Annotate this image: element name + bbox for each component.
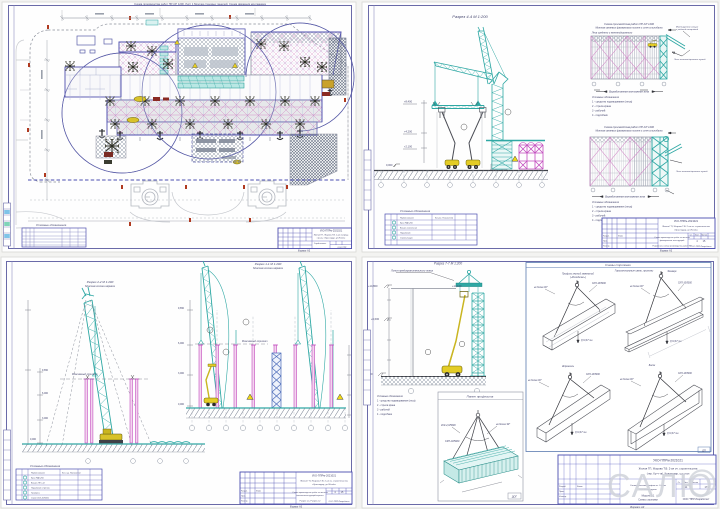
svg-text:не более 90°: не более 90° (620, 379, 634, 381)
svg-text:с рабочей площадкой: с рабочей площадкой (676, 28, 699, 31)
svg-text:СКП-10/5000: СКП-10/5000 (586, 374, 600, 376)
svg-text:г.Краснодар, ул.Жлобы: г.Краснодар, ул.Жлобы (674, 230, 698, 232)
svg-text:Схема производства работ ПР-СР: Схема производства работ ПР-СР 1200 (604, 22, 654, 26)
svg-text:Кран РДК-250: Кран РДК-250 (31, 478, 45, 480)
svg-text:Подъёмник стрелов.: Подъёмник стрелов. (31, 488, 50, 490)
svg-text:Леса железнодорожных путей: Леса железнодорожных путей (673, 58, 706, 61)
svg-text:Условные обозначения: Условные обозначения (592, 96, 620, 99)
svg-text:Кран РДК-250: Кран РДК-250 (400, 223, 414, 225)
svg-text:Н.контр.: Н.контр. (559, 496, 567, 498)
svg-text:Фокин: Фокин (618, 235, 623, 238)
svg-text:Шпренгель: Шпренгель (562, 366, 575, 368)
svg-text:Q=0,67 тн: Q=0,67 тн (581, 340, 593, 342)
svg-text:СКП-10/5000: СКП-10/5000 (678, 373, 692, 375)
svg-text:6,000: 6,000 (178, 342, 185, 345)
svg-text:+8,400: +8,400 (404, 100, 413, 104)
svg-text:1 - средство подмащивания (лес: 1 - средство подмащивания (леса) (592, 206, 632, 209)
svg-text:1 - средство подмащивания (лес: 1 - средство подмащивания (леса) (377, 400, 416, 403)
svg-text:Q=0,67 тн: Q=0,67 тн (667, 433, 679, 435)
svg-text:САЛЮ: САЛЮ (607, 467, 714, 504)
svg-text:9,650: 9,650 (178, 307, 185, 310)
svg-text:УКО-ППРм-2021021: УКО-ППРм-2021021 (674, 219, 699, 223)
svg-text:Пров.: Пров. (559, 491, 565, 493)
svg-text:Леса среднего и железнодорожно: Леса среднего и железнодорожного (591, 32, 633, 35)
svg-text:Листов: Листов (701, 235, 707, 237)
svg-text:Монтаж связевых фахверковых ко: Монтаж связевых фахверковых колонн и сте… (596, 27, 664, 30)
svg-text:не более 90°: не более 90° (534, 287, 548, 289)
svg-text:Горизонтальные связи, прогоны: Горизонтальные связи, прогоны (615, 270, 654, 273)
svg-text:6,000: 6,000 (42, 392, 49, 395)
svg-text:1 - средство подмащивания (лес: 1 - средство подмащивания (леса) (592, 101, 632, 104)
svg-text:+14,800: +14,800 (368, 284, 378, 288)
svg-text:Монтаж колонн каркаса: Монтаж колонн каркаса (85, 284, 115, 288)
svg-text:Разрез 1-1 М 1:200: Разрез 1-1 М 1:200 (255, 262, 282, 266)
svg-text:г.Краснодар, ул.Жлобы: г.Краснодар, ул.Жлобы (312, 484, 336, 486)
svg-text:+4,200: +4,200 (404, 130, 413, 134)
svg-text:4 - подсобник: 4 - подсобник (592, 114, 609, 117)
svg-text:4СК-2,0/5000: 4СК-2,0/5000 (441, 424, 456, 427)
svg-text:Монтажный горизонт: Монтажный горизонт (72, 373, 98, 376)
svg-text:Разрез 4-4 М 1:200: Разрез 4-4 М 1:200 (452, 14, 488, 19)
svg-text:Выработанная монтажная зона: Выработанная монтажная зона (605, 195, 645, 199)
svg-text:не более 90°: не более 90° (630, 286, 644, 288)
svg-text:2 - стрела крана: 2 - стрела крана (377, 404, 396, 407)
svg-text:Вышка ножничная: Вышка ножничная (400, 228, 417, 230)
svg-text:СКП-10/5000: СКП-10/5000 (592, 283, 606, 285)
svg-text:Монтируемая секция: Монтируемая секция (676, 27, 699, 29)
svg-text:Леса железнодорожных путей: Леса железнодорожных путей (675, 170, 708, 173)
svg-text:ДОГ: ДОГ (512, 495, 518, 499)
svg-text:3 - рабочий: 3 - рабочий (592, 110, 606, 113)
svg-text:Схема производства работ на мо: Схема производства работ на монтаж (654, 237, 690, 239)
svg-text:2 - стрела крана: 2 - стрела крана (592, 105, 612, 108)
svg-text:Строп 4СК-10/5000: Строп 4СК-10/5000 (31, 498, 50, 500)
svg-text:Стропальщик: Стропальщик (400, 238, 413, 240)
svg-text:Формат А3: Формат А3 (290, 505, 303, 508)
svg-text:Стройгенплан: Стройгенплан (314, 242, 326, 245)
svg-text:СКП-10/5000: СКП-10/5000 (678, 283, 692, 285)
svg-text:Пакет профлиста: Пакет профлиста (467, 395, 494, 399)
svg-text:Разрез 7-7 М 1:200: Разрез 7-7 М 1:200 (434, 262, 462, 266)
svg-text:Условные обозначения: Условные обозначения (36, 223, 67, 227)
svg-text:Схема производства работ ПР-СР: Схема производства работ ПР-СР 1200. Лис… (134, 2, 266, 6)
svg-text:Лист: Лист (695, 235, 699, 237)
svg-text:Формат А3: Формат А3 (298, 250, 311, 253)
svg-text:Q=0,67 тн: Q=0,67 тн (575, 432, 587, 434)
svg-text:Q=0,67 тн: Q=0,67 тн (670, 341, 682, 343)
svg-text:Разрез 1-1, Разрез 2-2: Разрез 1-1, Разрез 2-2 (300, 501, 322, 503)
svg-text:Н.контр.: Н.контр. (241, 501, 248, 503)
svg-text:УКО-ППРм-2021021: УКО-ППРм-2021021 (312, 474, 337, 478)
svg-text:ДП: ДП (702, 449, 706, 453)
svg-text:СКП-10/5000: СКП-10/5000 (445, 440, 460, 443)
svg-text:3,000: 3,000 (42, 417, 49, 420)
svg-text:Пров.: Пров. (241, 496, 246, 498)
svg-text:Кол-во. Показатели: Кол-во. Показатели (435, 218, 453, 220)
svg-text:Разрез 4-4, схема производства: Разрез 4-4, схема производства работ ПР (653, 246, 693, 248)
svg-text:Фокин: Фокин (577, 485, 583, 488)
svg-text:Условные обозначения: Условные обозначения (377, 395, 403, 398)
svg-text:Монтажный горизонт: Монтажный горизонт (242, 340, 268, 343)
svg-text:3 - рабочий: 3 - рабочий (592, 215, 606, 218)
svg-text:ООО ППР-Разработка: ООО ППР-Разработка (329, 501, 351, 503)
svg-text:не более 90°: не более 90° (496, 423, 510, 426)
svg-text:Профиль гнутый замкнутый: Профиль гнутый замкнутый (562, 273, 595, 276)
svg-text:фахверковых конструкций: фахверковых конструкций (660, 239, 684, 242)
svg-text:Условные обозначения: Условные обозначения (30, 464, 61, 468)
svg-text:Пров.: Пров. (603, 241, 608, 243)
svg-text:Наименование: Наименование (31, 473, 46, 475)
svg-text:Траверса: Траверса (31, 493, 41, 495)
svg-text:3,000: 3,000 (178, 372, 185, 375)
svg-text:Разраб.: Разраб. (559, 486, 567, 488)
svg-text:Монтаж колонн каркаса: Монтаж колонн каркаса (253, 266, 283, 270)
svg-text:4 - подсобник: 4 - подсобник (377, 413, 393, 416)
svg-text:Схемы строповки: Схемы строповки (605, 263, 631, 267)
svg-text:Линия предохранительного пояса: Линия предохранительного пояса (390, 269, 433, 273)
svg-text:Кол. ед. Показатели: Кол. ед. Показатели (62, 473, 81, 475)
svg-text:9,650: 9,650 (42, 369, 49, 372)
svg-text:Выработанная монтажная зона: Выработанная монтажная зона (609, 90, 649, 94)
svg-text:Жилая ГП, Жарова Т.В. 2-ая оче: Жилая ГП, Жарова Т.В. 2-ая очередь (314, 235, 349, 237)
svg-text:Схема производства работ ПР-СР: Схема производства работ ПР-СР 1200 (604, 125, 654, 129)
svg-text:Вышка ПГС-12: Вышка ПГС-12 (31, 483, 46, 485)
svg-text:ООО ППР-Разработка: ООО ППР-Разработка (691, 246, 713, 248)
svg-text:Условные обозначения: Условные обозначения (592, 201, 620, 204)
svg-text:(«Молодечно»): («Молодечно») (570, 276, 586, 279)
svg-text:Разраб.: Разраб. (241, 491, 248, 493)
svg-text:Н.контр.: Н.контр. (603, 246, 610, 248)
svg-text:Фокин: Фокин (256, 490, 261, 493)
svg-text:+2,100: +2,100 (404, 145, 413, 149)
svg-text:металлоконструкций каркаса: металлоконструкций каркаса (296, 494, 324, 497)
svg-text:0,000: 0,000 (30, 438, 37, 441)
svg-text:Разраб.: Разраб. (603, 236, 610, 238)
svg-text:2 - стрела крана: 2 - стрела крана (592, 210, 612, 213)
svg-text:Наименование: Наименование (400, 218, 415, 220)
svg-text:+14,100: +14,100 (452, 284, 462, 288)
svg-text:Монтаж связевых фахверковых ко: Монтаж связевых фахверковых колонн и сте… (596, 130, 664, 133)
svg-text:Подъёмник: Подъёмник (400, 233, 411, 235)
svg-text:Жилая ГП, Жарова Т.В. 2-ая оч.: Жилая ГП, Жарова Т.В. 2-ая оч. строитель… (300, 481, 349, 483)
svg-text:0,000: 0,000 (178, 403, 185, 406)
svg-text:Балки: Балки (649, 365, 656, 367)
svg-text:0,000: 0,000 (386, 163, 393, 167)
svg-text:Фахверк: Фахверк (667, 270, 677, 273)
svg-text:Жилая ГП, Жарова Т.В. 2-ая оч.: Жилая ГП, Жарова Т.В. 2-ая оч. строитель… (662, 226, 711, 228)
svg-text:Формат А3: Формат А3 (660, 249, 673, 252)
svg-text:Схема производства работ на мо: Схема производства работ на монтаж (292, 492, 328, 494)
svg-text:+6,600: +6,600 (371, 317, 380, 321)
svg-text:Условные обозначения: Условные обозначения (400, 209, 431, 213)
svg-text:УКО-ППРм-2021021: УКО-ППРм-2021021 (653, 459, 683, 463)
svg-text:ООО ППР: ООО ППР (338, 247, 348, 249)
svg-text:не более 90°: не более 90° (528, 380, 542, 382)
svg-text:УКО-ППРм-2021021: УКО-ППРм-2021021 (320, 230, 343, 233)
svg-text:стр-ва, г.Краснодар, ул.Жлобы: стр-ва, г.Краснодар, ул.Жлобы (317, 238, 346, 240)
svg-text:Разрез 2-2 М 1:200: Разрез 2-2 М 1:200 (87, 280, 114, 284)
svg-text:3 - рабочий: 3 - рабочий (377, 409, 390, 412)
svg-text:Формат А3: Формат А3 (630, 505, 645, 509)
